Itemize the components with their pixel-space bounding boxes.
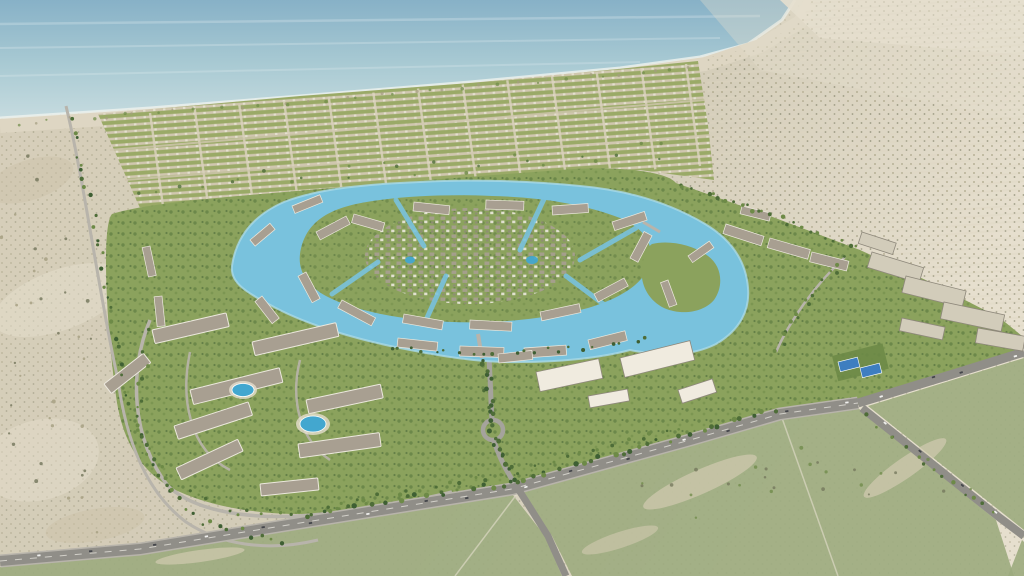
island-village-roofs <box>365 208 575 304</box>
masterplan-scene <box>0 0 1024 576</box>
aerial-render-canvas <box>0 0 1024 576</box>
pool <box>232 384 254 397</box>
pool <box>526 256 538 264</box>
pool <box>405 257 415 264</box>
pool <box>300 416 326 432</box>
